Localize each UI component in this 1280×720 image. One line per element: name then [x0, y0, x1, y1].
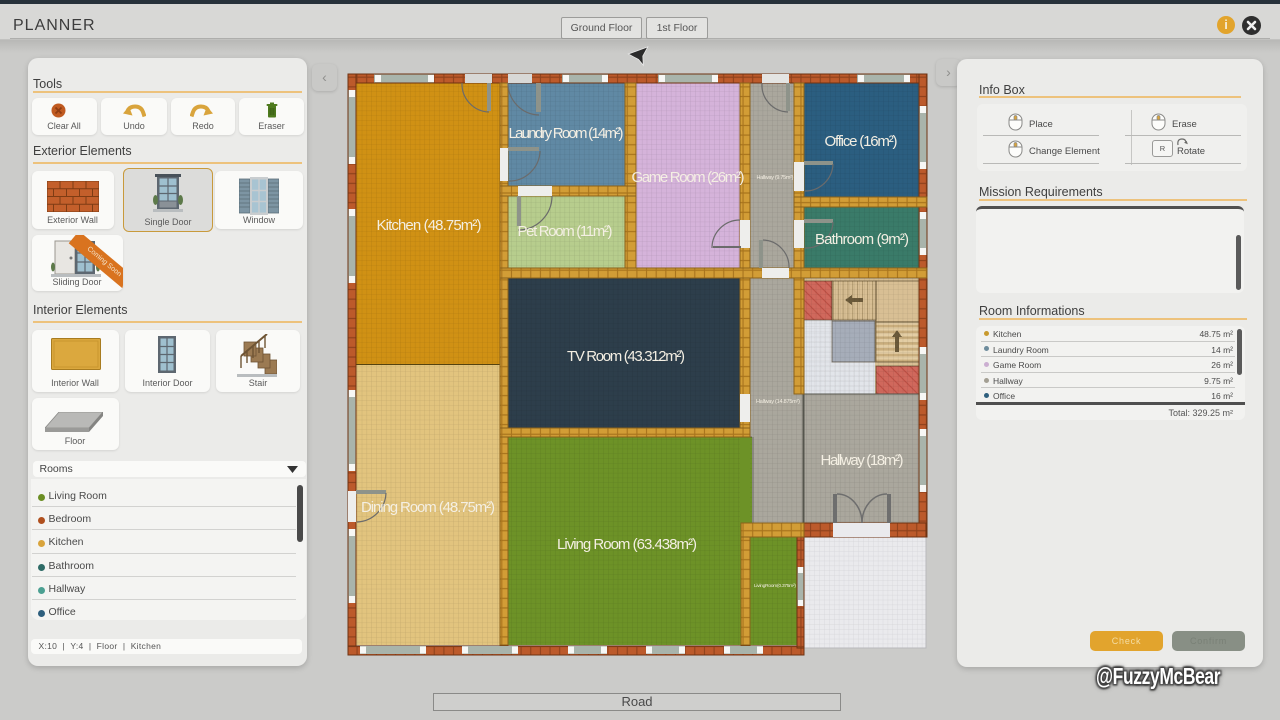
svg-text:Dining Room (48.75m²): Dining Room (48.75m²) [361, 499, 495, 516]
svg-text:Kitchen (48.75m²): Kitchen (48.75m²) [377, 217, 482, 234]
svg-text:Hallway (18m²): Hallway (18m²) [821, 452, 904, 469]
svg-text:TV Room (43.312m²): TV Room (43.312m²) [567, 348, 685, 365]
svg-text:Office (16m²): Office (16m²) [825, 133, 898, 150]
svg-text:Hallway (9.75m²): Hallway (9.75m²) [757, 175, 794, 181]
svg-text:Game Room (26m²): Game Room (26m²) [632, 169, 745, 186]
svg-text:Pet Room (11m²): Pet Room (11m²) [518, 223, 613, 240]
svg-text:Bathroom (9m²): Bathroom (9m²) [815, 231, 909, 248]
svg-text:Laundry Room (14m²): Laundry Room (14m²) [509, 125, 624, 142]
svg-text:Living Room (63.438m²): Living Room (63.438m²) [557, 536, 697, 553]
svg-text:Hallway (14.875m²): Hallway (14.875m²) [756, 399, 800, 405]
svg-text:LivingRoom(0.375m²): LivingRoom(0.375m²) [754, 583, 796, 589]
